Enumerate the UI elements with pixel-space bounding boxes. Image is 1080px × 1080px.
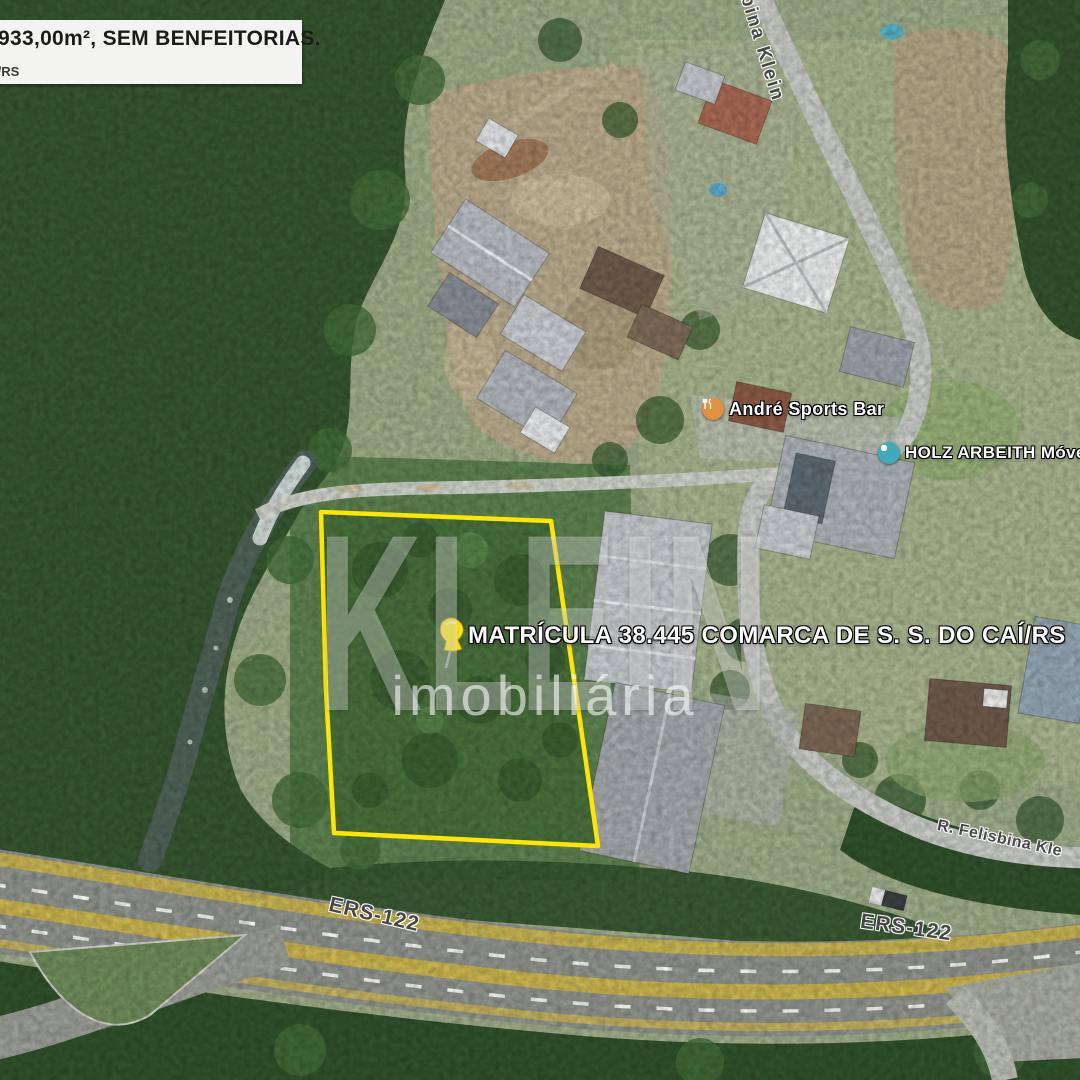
listing-info-fragment: Í/RS — [0, 64, 19, 79]
poi-holz-arbeith-moveis: HOLZ ARBEITH Móveis — [878, 442, 1080, 464]
store-icon — [878, 442, 900, 464]
listing-info-box: 933,00m², SEM BENFEITORIAS. Í/RS — [0, 20, 302, 84]
poi-label: André Sports Bar — [729, 399, 884, 420]
restaurant-icon — [702, 398, 724, 420]
poi-andre-sports-bar: André Sports Bar — [702, 398, 884, 420]
listing-area-text: 933,00m², SEM BENFEITORIAS. — [0, 27, 321, 51]
watermark-tagline: imobiliária — [391, 668, 698, 724]
matricula-annotation: MATRÍCULA 38.445 COMARCA DE S. S. DO CAÍ… — [468, 622, 1066, 650]
map-stage: KLEIN imobiliária bina Klein André Sport… — [0, 0, 1080, 1080]
poi-label: HOLZ ARBEITH Móveis — [905, 443, 1080, 463]
